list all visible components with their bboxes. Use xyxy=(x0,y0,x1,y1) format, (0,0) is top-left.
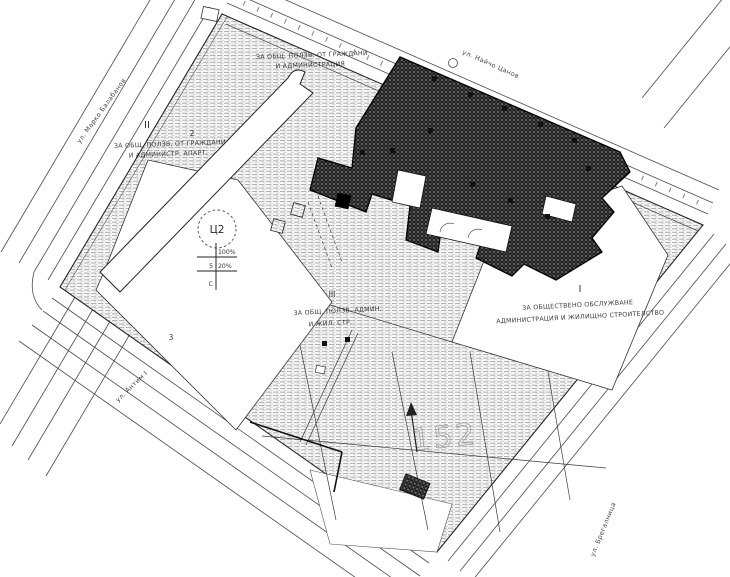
zone-ii-parcel-no: 2 xyxy=(190,129,195,138)
black-square-mark xyxy=(428,128,433,133)
black-square-mark xyxy=(572,138,577,143)
planter-square xyxy=(291,203,306,218)
small-structure xyxy=(315,365,325,373)
zone-i-numeral: I xyxy=(579,284,582,295)
zone-code-label: Ц2 xyxy=(210,224,225,236)
planter-square xyxy=(271,219,286,234)
black-square-mark xyxy=(545,214,550,219)
green-value: 20% xyxy=(218,263,232,270)
black-square-mark xyxy=(345,337,350,342)
density-value: 100% xyxy=(218,249,236,256)
solid-annex xyxy=(335,193,352,210)
street-label-nw: ул. Марко Балабанов xyxy=(75,77,128,145)
zone-iii-numeral: III xyxy=(329,290,336,299)
parcel-3-label: 3 xyxy=(169,333,174,342)
black-square-mark xyxy=(390,148,395,153)
black-square-mark xyxy=(322,341,327,346)
street-survey-mark xyxy=(449,59,458,68)
black-square-mark xyxy=(468,92,473,97)
zone-ii-numeral: II xyxy=(144,120,150,131)
black-square-mark xyxy=(508,198,513,203)
black-square-mark xyxy=(470,182,475,187)
block-number-label: 152 xyxy=(410,417,480,459)
black-square-mark xyxy=(502,106,507,111)
black-square-mark xyxy=(360,150,365,155)
courtyard-notch xyxy=(392,170,426,208)
top-vertex-structure xyxy=(201,6,219,21)
black-square-mark xyxy=(538,122,543,127)
site-plan-canvas: Ц2 100% 5 20% С 152 ЗА ОБЩ. ПОЛЗВ. ОТ ГР… xyxy=(0,0,730,577)
note-value: С xyxy=(209,281,213,288)
floors-value: 5 xyxy=(209,263,213,270)
street-label-se: ул. Брегалница xyxy=(589,501,618,558)
black-square-mark xyxy=(586,166,591,171)
site-plan-scan: Ц2 100% 5 20% С 152 ЗА ОБЩ. ПОЛЗВ. ОТ ГР… xyxy=(0,0,730,577)
black-square-mark xyxy=(432,76,437,81)
street-label-ne: ул. Найчо Цанов xyxy=(461,48,520,80)
